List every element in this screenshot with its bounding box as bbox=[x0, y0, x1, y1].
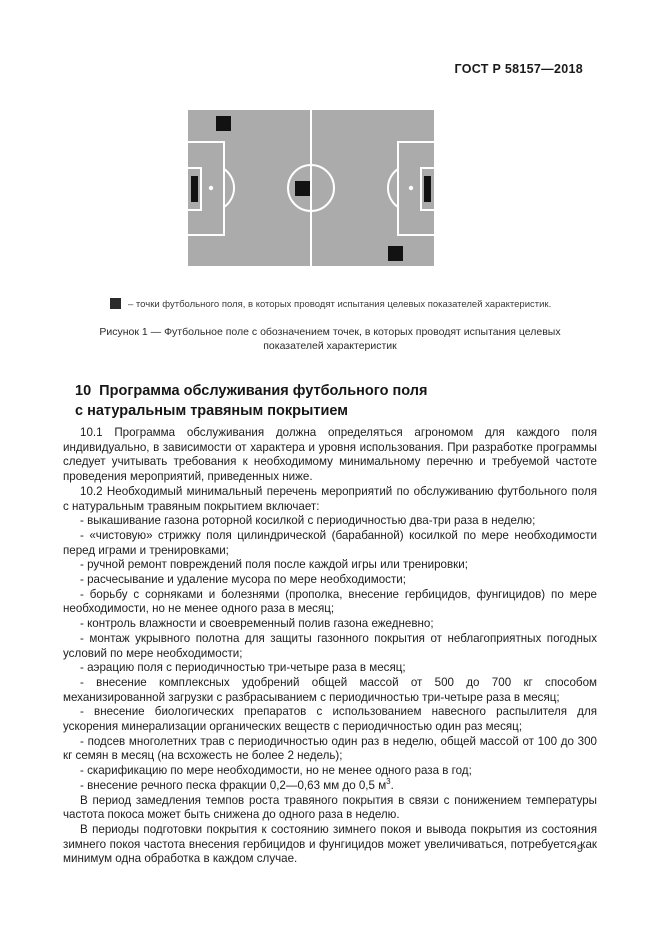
penalty-spot-left bbox=[209, 186, 213, 190]
figure-caption: Рисунок 1 — Футбольное поле с обозначени… bbox=[80, 326, 580, 353]
test-point-marker bbox=[216, 116, 231, 131]
body-text: 10.1 Программа обслуживания должна опред… bbox=[63, 426, 597, 867]
paragraph: В период замедления темпов роста травяно… bbox=[63, 794, 597, 823]
figure-legend-text: – точки футбольного поля, в которых пров… bbox=[128, 299, 551, 310]
penalty-spot-right bbox=[409, 186, 413, 190]
paragraph: - борьбу с сорняками и болезнями (пропол… bbox=[63, 588, 597, 617]
test-point-marker bbox=[388, 246, 403, 261]
paragraph: - скарификацию по мере необходимости, но… bbox=[63, 764, 597, 779]
section-heading: 10 Программа обслуживания футбольного по… bbox=[75, 381, 601, 421]
paragraph: 10.2 Необходимый минимальный перечень ме… bbox=[63, 485, 597, 514]
goal-marker-left bbox=[191, 176, 198, 202]
paragraph: - внесение комплексных удобрений общей м… bbox=[63, 676, 597, 705]
section-heading-line2: с натуральным травяным покрытием bbox=[75, 401, 601, 421]
football-field-figure bbox=[186, 108, 436, 268]
paragraph: - «чистовую» стрижку поля цилиндрической… bbox=[63, 529, 597, 558]
paragraph: - контроль влажности и своевременный пол… bbox=[63, 617, 597, 632]
test-point-marker bbox=[295, 181, 310, 196]
paragraph: - выкашивание газона роторной косилкой с… bbox=[63, 514, 597, 529]
paragraph: - аэрацию поля с периодичностью три-четы… bbox=[63, 661, 597, 676]
paragraph: 10.1 Программа обслуживания должна опред… bbox=[63, 426, 597, 485]
paragraph: - ручной ремонт повреждений поля после к… bbox=[63, 558, 597, 573]
figure-legend: – точки футбольного поля, в которых пров… bbox=[110, 298, 601, 310]
paragraph: - внесение речного песка фракции 0,2—0,6… bbox=[63, 779, 597, 794]
paragraph: - расчесывание и удаление мусора по мере… bbox=[63, 573, 597, 588]
standard-number-header: ГОСТ Р 58157—2018 bbox=[0, 62, 583, 76]
paragraph: - внесение биологических препаратов с ис… bbox=[63, 705, 597, 734]
section-heading-line1: 10 Программа обслуживания футбольного по… bbox=[75, 381, 601, 401]
paragraph: - монтаж укрывного полотна для защиты га… bbox=[63, 632, 597, 661]
paragraph: - подсев многолетних трав с периодичност… bbox=[63, 735, 597, 764]
page-number: 9 bbox=[0, 843, 583, 855]
goal-marker-right bbox=[424, 176, 431, 202]
document-page: ГОСТ Р 58157—2018 – точки футбольного по… bbox=[0, 0, 661, 935]
test-point-legend-icon bbox=[110, 298, 121, 309]
